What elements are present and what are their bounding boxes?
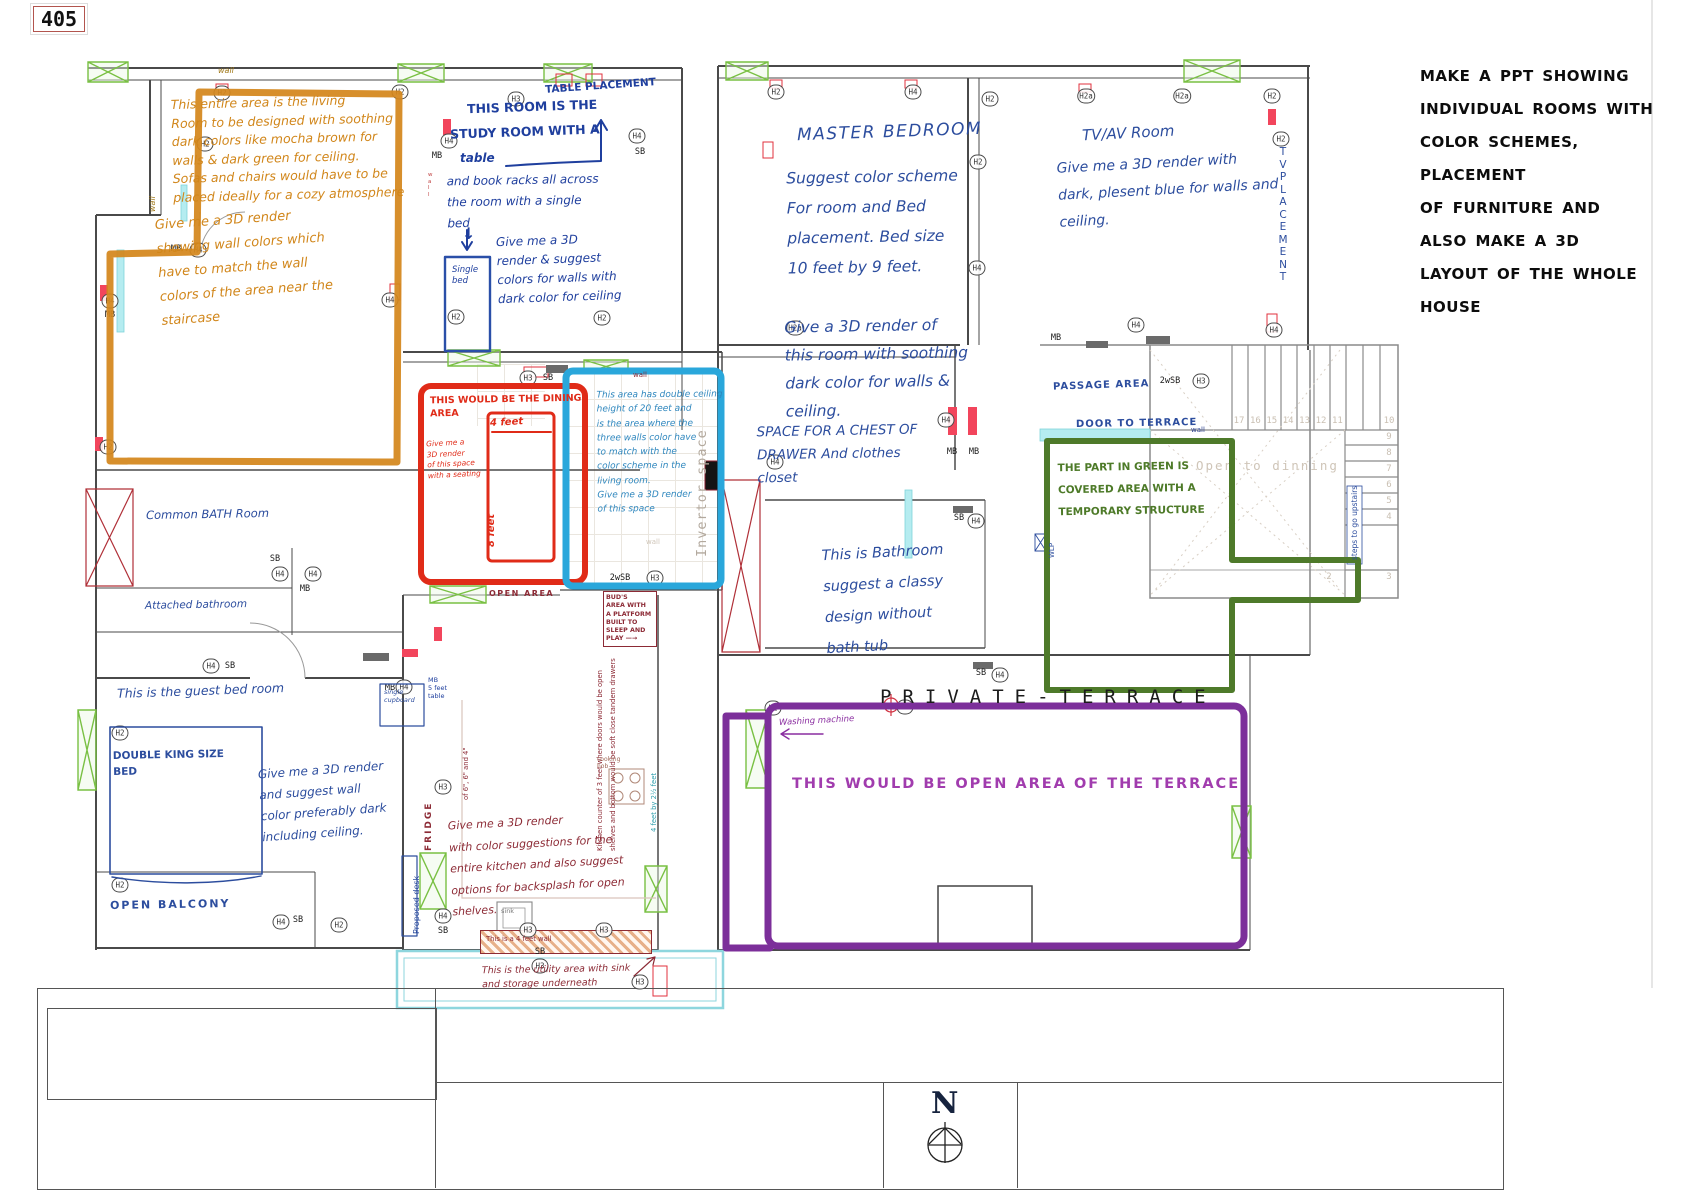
ppt-brief-note: MAKE A PPT SHOWING INDIVIDUAL ROOMS WITH… (1420, 60, 1684, 324)
side-table-label: MB 5 feet table (428, 676, 447, 700)
plan-marker-sb: SB (635, 147, 645, 157)
sink-label: sink (501, 907, 514, 915)
attached-bathroom-label: Attached bathroom (145, 598, 247, 612)
plan-marker-mb: MB (969, 447, 979, 457)
plan-marker-2wsb: 2wSB (610, 573, 630, 583)
plan-marker-2wsb: 2wSB (1160, 376, 1180, 386)
plan-marker-h2: H2 (970, 155, 987, 170)
terrace-open-area-note: THIS WOULD BE OPEN AREA OF THE TERRACE (792, 776, 1240, 792)
wall-label-terrace-door: wall (1191, 426, 1205, 434)
plan-marker-mb: MB (300, 584, 310, 594)
plan-marker-h4: H4 (1128, 318, 1145, 333)
single-bed-label: Single bed (452, 265, 478, 287)
plan-marker-h3: H3 (596, 923, 613, 938)
study-heading-3: table (460, 151, 495, 165)
plan-marker-h4: H4 (1266, 323, 1283, 338)
covered-area-note: THE PART IN GREEN IS COVERED AREA WITH A… (1057, 455, 1205, 524)
plan-number: 405 (33, 6, 85, 32)
plan-marker-mb: MB (105, 310, 115, 320)
open-balcony-label: OPEN BALCONY (110, 897, 231, 912)
plan-marker-h2a: H2a (1173, 89, 1191, 104)
cooking-hob-label: cooking hob (597, 756, 620, 770)
plan-marker-h4: H4 (969, 261, 986, 276)
guest-render-note: Give me a 3D render and suggest wall col… (257, 756, 388, 849)
wall-label-left: wall (148, 196, 157, 212)
kitchen-counter-note-2: shelves and bottom would be soft close t… (609, 658, 617, 851)
plan-marker-h3: H3 (520, 371, 537, 386)
wall-label-vertical: w a l l (428, 172, 433, 198)
plan-marker-h2: H2 (112, 726, 129, 741)
fridge-label: FRIDGE (424, 802, 434, 851)
wall-label-top: wall (218, 66, 234, 75)
tv-room-note: Give me a 3D render with dark, plesent b… (1056, 144, 1281, 236)
plan-marker-sb: SB (543, 373, 553, 383)
kitchen-counter-dim: 4 feet by 2½ feet (650, 773, 658, 832)
plan-marker-h2: H2 (594, 311, 611, 326)
plan-marker-h2: H2 (100, 440, 117, 455)
living-room-note: This entire area is the living Room to b… (171, 90, 406, 207)
plan-marker-h4: H4 (273, 915, 290, 930)
four-feet-wall-note: This is a 4 feet wall (486, 935, 552, 943)
plan-marker-h4: H4 (305, 567, 322, 582)
bathroom-right-note: This is Bathroom suggest a classy design… (821, 535, 949, 665)
plan-marker-h2: H2 (768, 85, 785, 100)
floor-plan-page: H2H2H3H4SBH4MBH2MBH4H4MBH4H2H2H2H3SBSBH4… (0, 0, 1684, 1190)
door-to-terrace-label: DOOR TO TERRACE (1076, 417, 1197, 430)
plan-marker-mb: MB (1051, 333, 1061, 343)
plan-marker-h4: H4 (203, 659, 220, 674)
plan-marker-h4: H4 (629, 129, 646, 144)
plan-marker-mb: MB (947, 447, 957, 457)
plan-marker-mb: MB (432, 151, 442, 161)
kitchen-render-note: Give me a 3D render with color suggestio… (447, 805, 660, 923)
wlp-label: WLP (1048, 543, 1056, 558)
master-note-2: Give a 3D render of this room with sooth… (784, 310, 969, 425)
guest-bed-label: DOUBLE KING SIZE BED (113, 746, 225, 780)
plan-marker-sb: SB (270, 554, 280, 564)
master-note-3: SPACE FOR A CHEST OF DRAWER And clothes … (756, 419, 918, 491)
plan-marker-h2: H2 (112, 878, 129, 893)
open-area-label: OPEN AREA (489, 589, 554, 598)
utility-note: This is the utility area with sink and s… (482, 962, 631, 993)
private-terrace-title: PRIVATE-TERRACE (880, 686, 1217, 708)
dining-width-label: 4 feet (490, 416, 524, 429)
plan-marker-h3: H3 (632, 975, 649, 990)
buds-area-note: BUD'S AREA WITH A PLATFORM BUILT TO SLEE… (603, 591, 657, 647)
plan-marker-h4: H4 (968, 514, 985, 529)
plan-marker-h4: H4 (272, 567, 289, 582)
study-render-note: Give me a 3D render & suggest colors for… (496, 229, 622, 309)
study-arrow-down-glyph: ↓ (462, 224, 475, 243)
proposed-desk-label: Proposed desk (412, 876, 421, 934)
plan-marker-h4: H4 (435, 909, 452, 924)
wall-label-mid: wall (646, 538, 660, 546)
plan-marker-h2: H2 (1264, 89, 1281, 104)
living-room-render-note: Give me a 3D render showing wall colors … (154, 198, 390, 334)
common-bathroom-label: Common BATH Room (146, 506, 269, 522)
plan-marker-h2a: H2a (1077, 89, 1095, 104)
plan-marker-h2: H2 (982, 92, 999, 107)
plan-marker-h3: H3 (1193, 374, 1210, 389)
steps-note: steps to go upstairs (1350, 486, 1359, 560)
cupboard-label: single cupboard (384, 688, 415, 704)
plan-marker-h4: H4 (992, 668, 1009, 683)
wall-label-cyanbox: wall (633, 371, 647, 379)
plan-marker-sb: SB (293, 915, 303, 925)
plan-marker-sb: SB (225, 661, 235, 671)
plan-marker-h3: H3 (435, 780, 452, 795)
plan-marker-h4: H4 (905, 85, 922, 100)
plan-marker-h4: H4 (102, 294, 119, 309)
invertor-space-label: Invertor space (694, 429, 710, 557)
plan-marker-h2: H2 (765, 701, 782, 716)
plan-marker-sb: SB (976, 668, 986, 678)
plan-marker-sb: SB (535, 947, 545, 957)
north-label: N (931, 1086, 958, 1121)
dining-height-label: 8 feet (486, 514, 497, 547)
plan-marker-h3: H3 (647, 571, 664, 586)
plan-marker-sb: SB (954, 513, 964, 523)
dining-render-note: Give me a 3D render of this space with a… (426, 437, 481, 482)
plan-marker-h2: H2 (331, 918, 348, 933)
tv-placement-vertical: T V P L A C E M E N T (1277, 146, 1289, 284)
master-note-1: Suggest color scheme For room and Bed pl… (786, 161, 960, 284)
plan-marker-h2: H2 (448, 310, 465, 325)
kitchen-counter-note-3: of 6", 6" and 4" (462, 748, 470, 801)
plan-marker-sb: SB (438, 926, 448, 936)
